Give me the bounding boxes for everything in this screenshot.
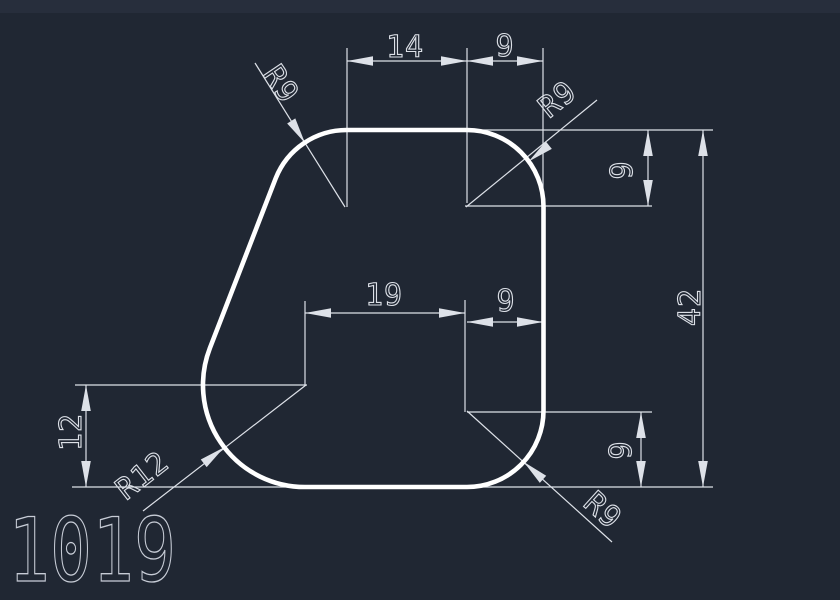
- dim-label-bottom-corner-height: 9: [604, 440, 639, 459]
- dim-label-top-width: 14: [386, 30, 424, 65]
- dim-label-top-corner-height: 9: [605, 160, 640, 179]
- dim-label-bottom-width: 19: [365, 278, 403, 313]
- canvas-top-band: [0, 0, 840, 13]
- dim-label-bottom-corner-width: 9: [496, 284, 515, 319]
- drawing-number-label: 1019: [8, 499, 176, 600]
- dim-label-left-height: 12: [54, 413, 89, 451]
- dim-label-overall-height: 42: [673, 288, 708, 326]
- cad-canvas: 14 9 9 42 19 9 12 9 R9 R9 R9 R12 1019: [0, 0, 840, 600]
- dim-label-top-corner-width: 9: [495, 29, 514, 64]
- cad-viewport: 14 9 9 42 19 9 12 9 R9 R9 R9 R12 1019: [0, 0, 840, 600]
